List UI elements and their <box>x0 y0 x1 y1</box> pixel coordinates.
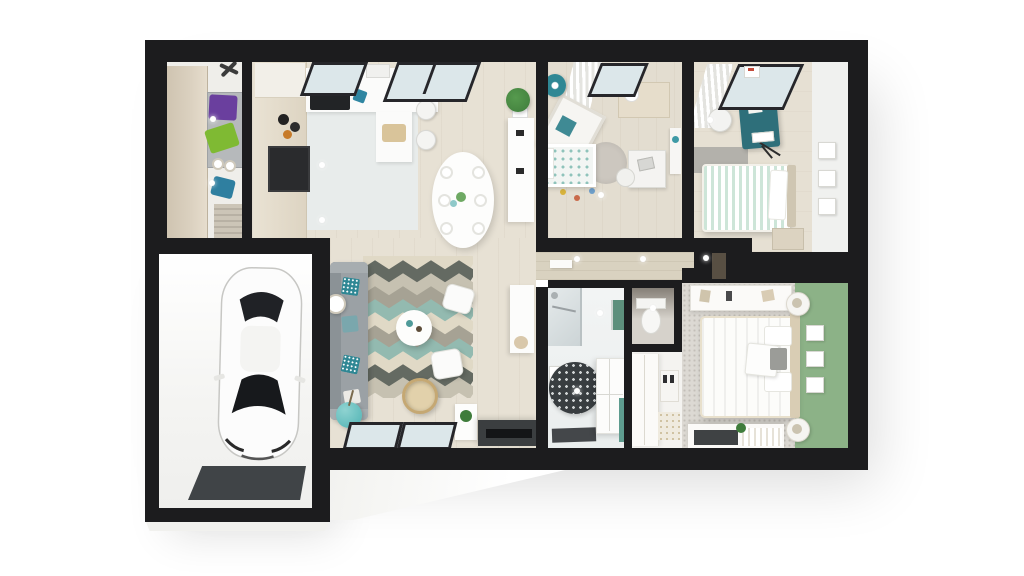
garage-door-mat <box>188 466 306 500</box>
wall-hall-right <box>738 252 752 283</box>
pouf-2 <box>430 348 464 381</box>
bench-dark-panel <box>694 430 738 445</box>
toy-1 <box>560 189 566 195</box>
living-window-2 <box>397 422 458 450</box>
spotlight-wc <box>650 305 656 311</box>
plate-4 <box>472 166 485 179</box>
dressing-wardrobe-line <box>644 355 645 445</box>
utility-door-mat <box>214 204 242 240</box>
shoe-slot-1 <box>663 375 667 383</box>
wall-bath-top <box>548 280 682 288</box>
wall-left-upper <box>145 40 167 252</box>
utility-detergent <box>212 158 224 170</box>
bench-striped-blanket <box>742 428 782 446</box>
spotlight-kitchen-2 <box>319 217 325 223</box>
utility-wardrobe <box>167 66 208 238</box>
spotlight-bath-2 <box>574 388 580 394</box>
living-window-1 <box>343 422 404 450</box>
wardrobe-item-1 <box>699 289 711 302</box>
sofa-pillow-2 <box>341 315 359 333</box>
master-cushion-grey <box>770 348 787 370</box>
potted-plant <box>506 88 530 112</box>
spotlight-utility-1 <box>210 116 216 122</box>
wall-utility-divider <box>242 62 252 240</box>
master-wall-frame-1 <box>806 325 824 341</box>
cooktop-burner-2 <box>290 122 300 132</box>
wall-master-top <box>682 268 868 283</box>
sideboard-item-1 <box>516 130 524 136</box>
spotlight-hall-2 <box>640 256 646 262</box>
towel-rail <box>611 300 624 330</box>
spotlight-bedroom2 <box>707 117 713 123</box>
sofa-armrest-top <box>330 262 368 273</box>
hanging-chair <box>402 378 438 414</box>
car <box>211 263 308 463</box>
bedroom2-headboard <box>787 165 796 227</box>
cabinet-panel-line-h <box>597 394 623 395</box>
bedroom2-wall-frame-2 <box>818 170 836 187</box>
bedroom2-nightstand <box>772 228 804 250</box>
exterior-face-south <box>330 470 565 520</box>
toy-3 <box>589 188 595 194</box>
kitchen-fridge <box>255 63 305 98</box>
coffee-table-decor <box>406 320 413 327</box>
master-pillow-top <box>764 326 792 346</box>
media-shelf-plant <box>460 410 472 422</box>
nightstand-top-lamp <box>792 298 802 308</box>
shower-head <box>551 292 558 299</box>
wall-hall-top <box>536 238 752 252</box>
exterior-face-garage <box>146 522 330 531</box>
kids-wall-shelf <box>670 128 681 174</box>
wardrobe-item-2 <box>726 291 732 301</box>
wall-bottom <box>312 448 868 470</box>
coffee-table <box>396 310 432 346</box>
shoe-slot-2 <box>670 375 674 383</box>
bedroom2-wall-frame-3 <box>818 198 836 215</box>
mint-bed-pillow <box>768 170 789 221</box>
spotlight-utility-2 <box>209 180 215 186</box>
spotlight-kitchen-1 <box>319 162 325 168</box>
wall-garage-top <box>145 238 330 254</box>
nightstand-bottom-lamp <box>792 424 802 434</box>
wall-garage-left <box>145 252 159 522</box>
floor-plan-render <box>0 0 1024 576</box>
hall-shelf <box>550 260 572 268</box>
wall-bath-right <box>624 288 632 448</box>
plate-2 <box>438 194 451 207</box>
wardrobe-item-3 <box>761 289 775 302</box>
table-centerpiece <box>456 192 466 202</box>
sideboard-item-2 <box>516 168 524 174</box>
dressing-rug <box>658 412 680 440</box>
master-plant <box>736 423 746 433</box>
plate-1 <box>440 166 453 179</box>
tv <box>486 429 532 438</box>
wall-kids-bedroom2-divider <box>682 62 694 238</box>
sofa-pillow-1 <box>341 277 360 296</box>
wall-living-right-lower <box>536 287 548 448</box>
sofa-pillow-3 <box>340 354 360 374</box>
book-stack <box>752 131 775 143</box>
bar-stool-1 <box>416 100 436 120</box>
orange-pan <box>283 130 292 139</box>
plate-5 <box>474 194 487 207</box>
wall-garage-right <box>312 252 330 522</box>
cabinet-panel-line-v <box>609 359 610 431</box>
cooktop-burner-1 <box>278 114 289 125</box>
wall-wc-right <box>674 288 682 352</box>
toilet-bowl <box>641 308 661 334</box>
utility-detergent-2 <box>224 160 236 172</box>
master-wall-frame-2 <box>806 351 824 367</box>
sofa-backrest <box>330 262 341 420</box>
spotlight-hall-3 <box>703 255 709 261</box>
bedroom2-wall-frame-1 <box>818 142 836 159</box>
hall-door <box>712 253 726 279</box>
wall-living-right-upper <box>536 62 548 238</box>
plate-6 <box>472 222 485 235</box>
ceiling-vent <box>366 64 390 78</box>
coffee-table-decor-2 <box>416 326 422 332</box>
cutting-board <box>382 124 406 142</box>
bath-mat <box>552 427 596 443</box>
table-centerpiece-2 <box>450 200 457 207</box>
spotlight-bath-1 <box>597 310 603 316</box>
dressing-wardrobe <box>632 354 659 446</box>
kids-desk-chair <box>616 168 635 187</box>
master-wall-frame-3 <box>806 377 824 393</box>
shelf-teal-item <box>672 136 679 143</box>
toy-2 <box>574 195 580 201</box>
bar-stool-2 <box>416 130 436 150</box>
wall-wc-bottom <box>624 344 682 352</box>
spotlight-hall-1 <box>574 256 580 262</box>
wall-garage-bottom <box>145 508 330 522</box>
sideboard-basket <box>514 336 528 349</box>
wall-top <box>145 40 868 62</box>
oven <box>268 146 310 192</box>
spotlight-kids <box>598 192 604 198</box>
bedroom2-frame-red-mark <box>748 68 754 71</box>
plate-3 <box>440 222 453 235</box>
